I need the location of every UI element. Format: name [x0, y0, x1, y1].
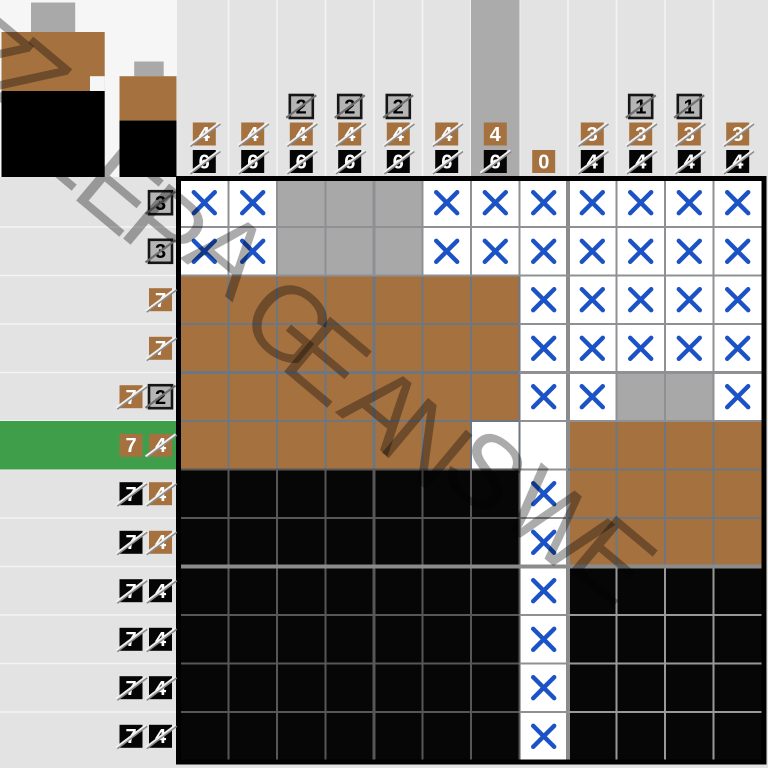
svg-text:0: 0	[538, 152, 549, 174]
svg-text:7: 7	[125, 435, 136, 457]
svg-text:4: 4	[490, 124, 502, 146]
